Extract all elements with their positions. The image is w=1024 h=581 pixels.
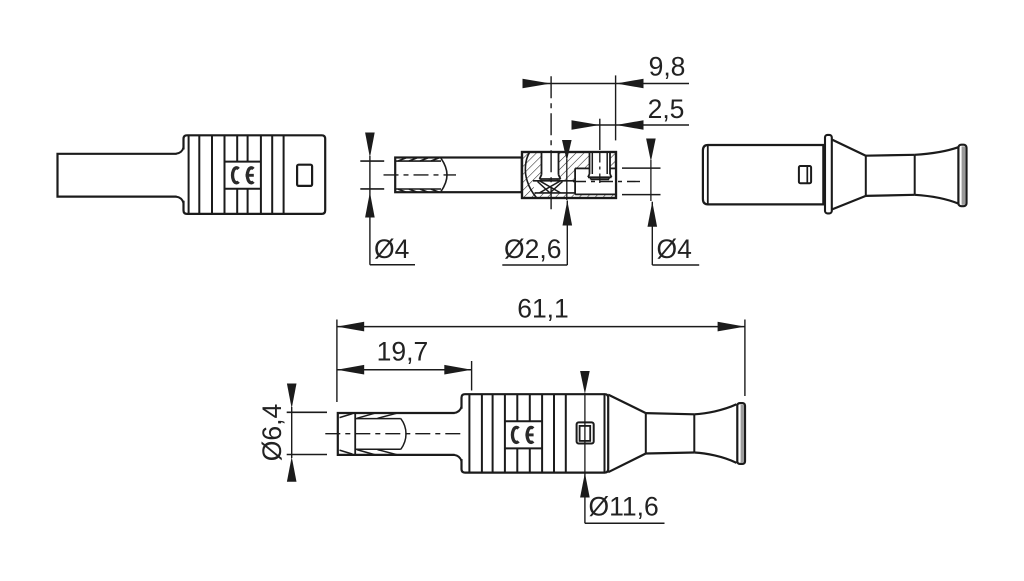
svg-text:61,1: 61,1 (517, 294, 569, 324)
svg-text:9,8: 9,8 (649, 52, 686, 82)
svg-text:Ø4: Ø4 (657, 234, 692, 264)
svg-text:Ø6,4: Ø6,4 (257, 404, 287, 461)
svg-text:2,5: 2,5 (648, 94, 685, 124)
svg-text:Ø2,6: Ø2,6 (504, 234, 561, 264)
svg-text:19,7: 19,7 (377, 337, 429, 367)
svg-text:Ø4: Ø4 (374, 234, 409, 264)
svg-text:Ø11,6: Ø11,6 (589, 492, 659, 522)
